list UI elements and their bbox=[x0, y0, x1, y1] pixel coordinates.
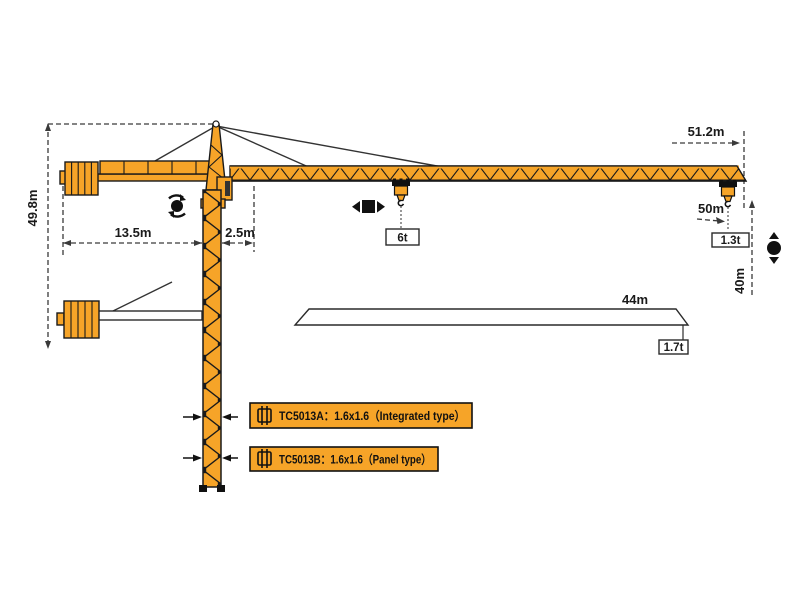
model-b-label: TC5013B：1.6x1.6（Panel type） bbox=[279, 452, 431, 467]
arrow-left bbox=[63, 240, 71, 246]
hoist-dot bbox=[767, 241, 781, 255]
under-hook-label: 40m bbox=[732, 268, 747, 294]
trolley-hook bbox=[392, 179, 410, 206]
model-label-a: TC5013A：1.6x1.6（Integrated type） bbox=[250, 403, 472, 428]
pointer-arrow-a-left bbox=[193, 414, 202, 421]
tip-trolley: 50m 1.3t bbox=[697, 180, 749, 248]
model-label-b: TC5013B：1.6x1.6（Panel type） bbox=[250, 447, 438, 471]
apex-pulley bbox=[213, 121, 219, 127]
travel-arrow-left bbox=[352, 201, 360, 213]
arrow-up bbox=[749, 200, 755, 208]
hook-radius-leader bbox=[697, 219, 719, 221]
tower-mast bbox=[199, 190, 225, 492]
jib bbox=[230, 166, 746, 181]
ground-beam bbox=[96, 311, 202, 320]
slewing-dot bbox=[171, 200, 183, 212]
pointer-arrow-b-right bbox=[222, 455, 231, 462]
ground-counterweight-tail bbox=[57, 313, 64, 325]
leader-arrow bbox=[716, 217, 725, 224]
travel-square bbox=[362, 200, 375, 213]
trolley-travel-icon bbox=[352, 200, 385, 213]
counter-jib bbox=[60, 161, 218, 195]
arrow-left bbox=[222, 240, 230, 246]
jib-tie-rod-long bbox=[216, 126, 448, 168]
center-offset-label: 2.5m bbox=[225, 225, 255, 240]
hoist-arrow-down bbox=[769, 257, 779, 264]
working-radius-label: 51.2m bbox=[688, 124, 725, 139]
counter-jib-tie-rod bbox=[148, 126, 216, 165]
counterweight-blocks bbox=[65, 162, 98, 195]
arrow-down bbox=[45, 341, 51, 349]
slewing-arrow-bottom bbox=[168, 211, 174, 218]
ground-tie-rod bbox=[113, 282, 172, 311]
beam-outline bbox=[295, 309, 688, 325]
counter-jib-platform bbox=[100, 161, 218, 174]
tower-height-label: 49.8m bbox=[25, 190, 40, 227]
pointer-arrow-b-left bbox=[193, 455, 202, 462]
cab-window bbox=[225, 181, 230, 196]
crane-diagram: 49.8m 13.5m 2.5m 51.2m 40m bbox=[0, 0, 800, 600]
mast-foot-left bbox=[199, 485, 207, 492]
pointer-arrow-a-right bbox=[222, 414, 231, 421]
travel-arrow-right bbox=[377, 201, 385, 213]
under-hook-dimension: 40m bbox=[732, 200, 755, 297]
hoist-arrow-up bbox=[769, 232, 779, 239]
hoist-icon bbox=[767, 232, 781, 264]
slewing-icon bbox=[168, 194, 186, 218]
counter-jib-radius-label: 13.5m bbox=[115, 225, 152, 240]
crane-diagram-canvas: 49.8m 13.5m 2.5m 51.2m 40m bbox=[0, 0, 800, 600]
jib-tie-rod-short bbox=[216, 126, 313, 169]
mast-lattice bbox=[203, 190, 221, 487]
arrow-right bbox=[194, 240, 202, 246]
tip-load-label: 1.3t bbox=[721, 235, 741, 247]
mast-foot-right bbox=[217, 485, 225, 492]
mid-trolley: 6t bbox=[386, 179, 419, 246]
max-load-label: 6t bbox=[397, 233, 407, 245]
model-a-label: TC5013A：1.6x1.6（Integrated type） bbox=[279, 408, 465, 423]
counterweight bbox=[60, 162, 98, 195]
ground-counter-jib bbox=[57, 282, 202, 338]
arrow-right bbox=[732, 140, 740, 146]
beam-load-label: 1.7t bbox=[664, 342, 684, 354]
ground-counterweight bbox=[64, 301, 99, 338]
jib-beam-ground: 44m 1.7t bbox=[295, 292, 688, 354]
arrow-right bbox=[245, 240, 253, 246]
hook-radius-label: 50m bbox=[698, 201, 724, 216]
slewing-arrow-top bbox=[180, 194, 186, 201]
beam-length-label: 44m bbox=[622, 292, 648, 307]
